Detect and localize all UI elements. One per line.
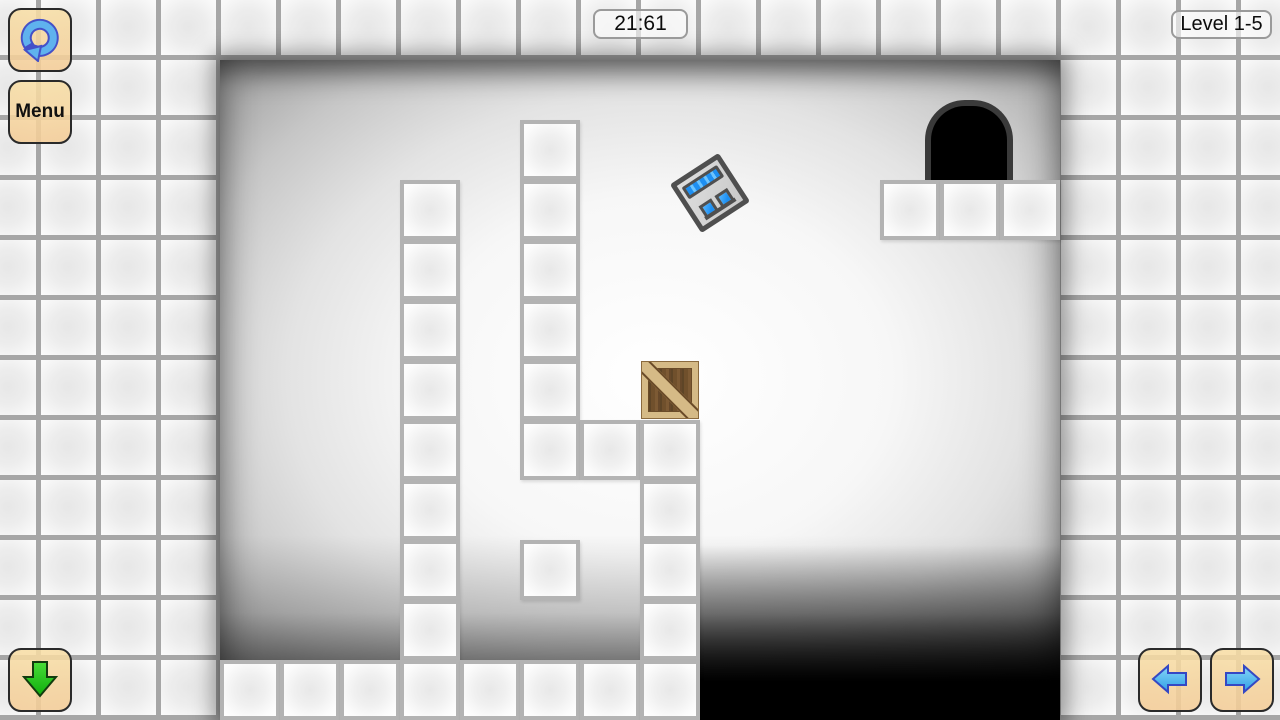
move-down-button[interactable] [8, 648, 72, 712]
wall-tile [400, 300, 460, 360]
wall-tile [520, 360, 580, 420]
wall-tile [520, 240, 580, 300]
level-indicator: Level 1-5 [1171, 10, 1272, 39]
wall-tile [400, 480, 460, 540]
wall-tile [520, 660, 580, 720]
wall-tile [400, 180, 460, 240]
wall-tile [1000, 180, 1060, 240]
wall-tile [280, 660, 340, 720]
wall-tile [640, 540, 700, 600]
timer-value: 21:61 [614, 12, 667, 36]
robot-visor-glass [686, 169, 721, 195]
green-down-arrow-icon [18, 657, 62, 704]
wall-tile [640, 420, 700, 480]
wall-tile [400, 360, 460, 420]
wooden-crate [641, 361, 699, 419]
wall-tile [400, 420, 460, 480]
wall-tile [400, 540, 460, 600]
wall-tile [580, 420, 640, 480]
reset-button[interactable] [8, 8, 72, 72]
game-stage: Menu 21:61 Level 1-5 [0, 0, 1280, 720]
wall-tile [400, 660, 460, 720]
wall-tile [520, 300, 580, 360]
playfield-pit-darkness [698, 545, 1060, 720]
wall-tile [640, 600, 700, 660]
wall-tile [520, 120, 580, 180]
wall-tile [520, 540, 580, 600]
exit-tunnel [925, 100, 1013, 180]
blue-left-arrow-icon [1148, 657, 1192, 704]
menu-button-label: Menu [15, 101, 65, 123]
wall-tile [640, 660, 700, 720]
wall-tile [640, 480, 700, 540]
wall-tile [400, 240, 460, 300]
blue-right-arrow-icon [1220, 657, 1264, 704]
timer-display: 21:61 [593, 9, 688, 39]
menu-button[interactable]: Menu [8, 80, 72, 144]
wall-tile [880, 180, 940, 240]
restart-circular-arrow-icon [17, 16, 63, 65]
robot-player [670, 153, 750, 233]
wall-tile [460, 660, 520, 720]
wall-tile [220, 660, 280, 720]
wall-tile [940, 180, 1000, 240]
move-left-button[interactable] [1138, 648, 1202, 712]
wall-tile [520, 420, 580, 480]
wall-tile [580, 660, 640, 720]
level-indicator-label: Level 1-5 [1180, 13, 1262, 36]
wall-tile [400, 600, 460, 660]
move-right-button[interactable] [1210, 648, 1274, 712]
wall-tile [520, 180, 580, 240]
playfield [220, 60, 1060, 720]
wall-tile [340, 660, 400, 720]
